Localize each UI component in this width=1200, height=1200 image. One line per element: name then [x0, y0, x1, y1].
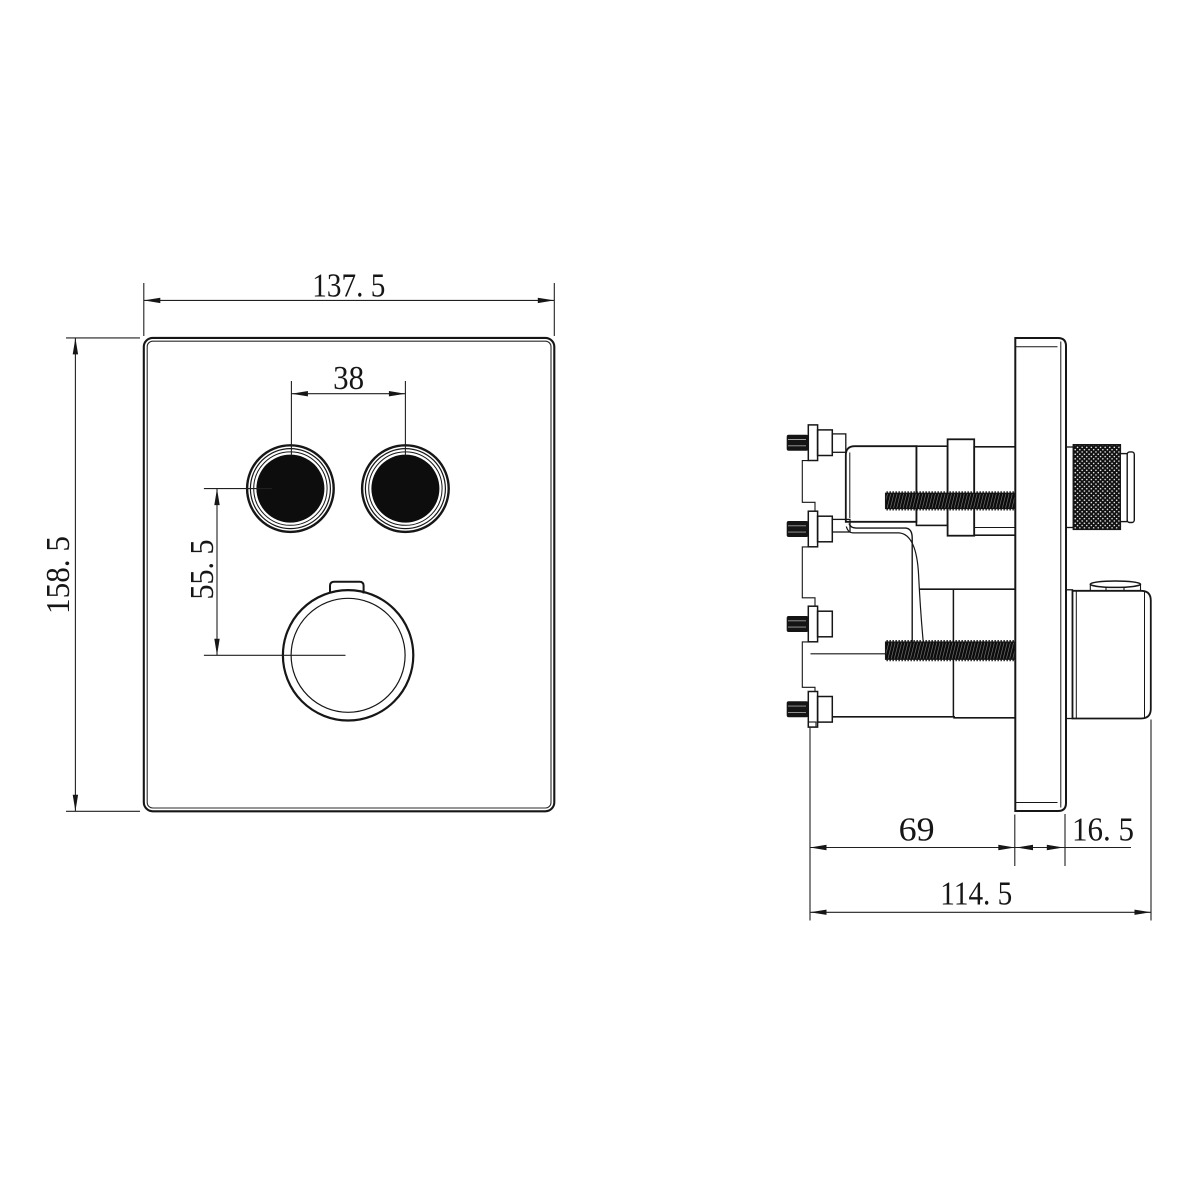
- svg-text:114. 5: 114. 5: [940, 876, 1012, 913]
- svg-text:158. 5: 158. 5: [40, 536, 77, 614]
- svg-text:55. 5: 55. 5: [184, 540, 221, 600]
- svg-text:69: 69: [899, 811, 935, 848]
- svg-text:38: 38: [333, 360, 364, 397]
- svg-text:137. 5: 137. 5: [312, 268, 385, 305]
- svg-text:16. 5: 16. 5: [1072, 811, 1134, 848]
